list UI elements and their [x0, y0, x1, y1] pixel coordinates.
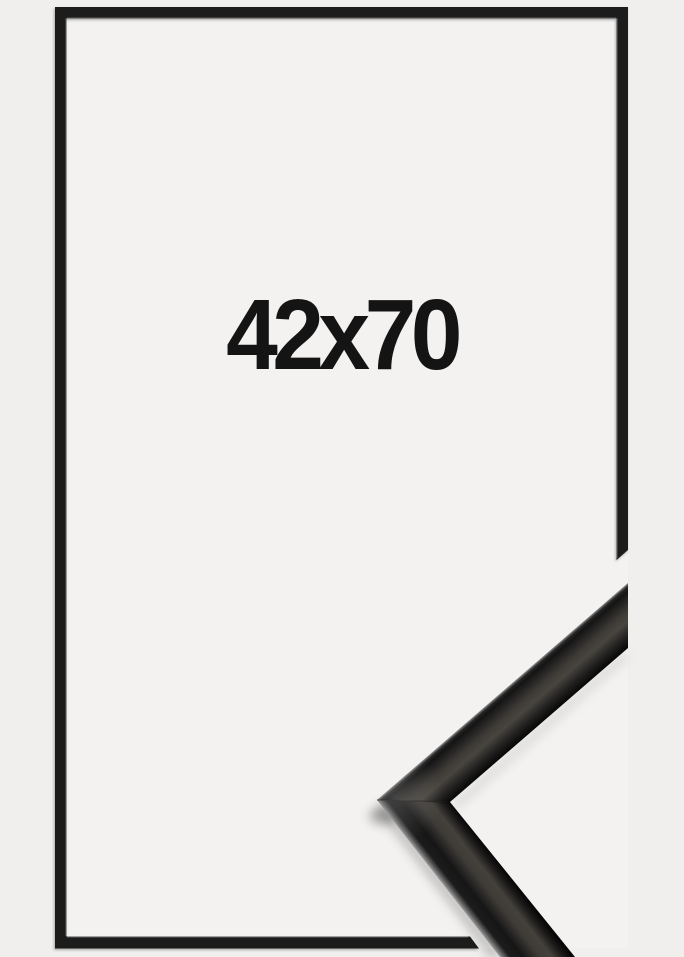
picture-area	[55, 7, 628, 949]
product-photo: 42x70	[0, 0, 684, 957]
frame-illustration	[0, 0, 684, 957]
frame-outline-left	[55, 7, 67, 949]
size-label: 42x70	[75, 285, 608, 385]
frame-outline-right	[617, 7, 629, 560]
frame-outline-bottom	[55, 937, 479, 949]
frame-outline-top	[55, 7, 628, 19]
